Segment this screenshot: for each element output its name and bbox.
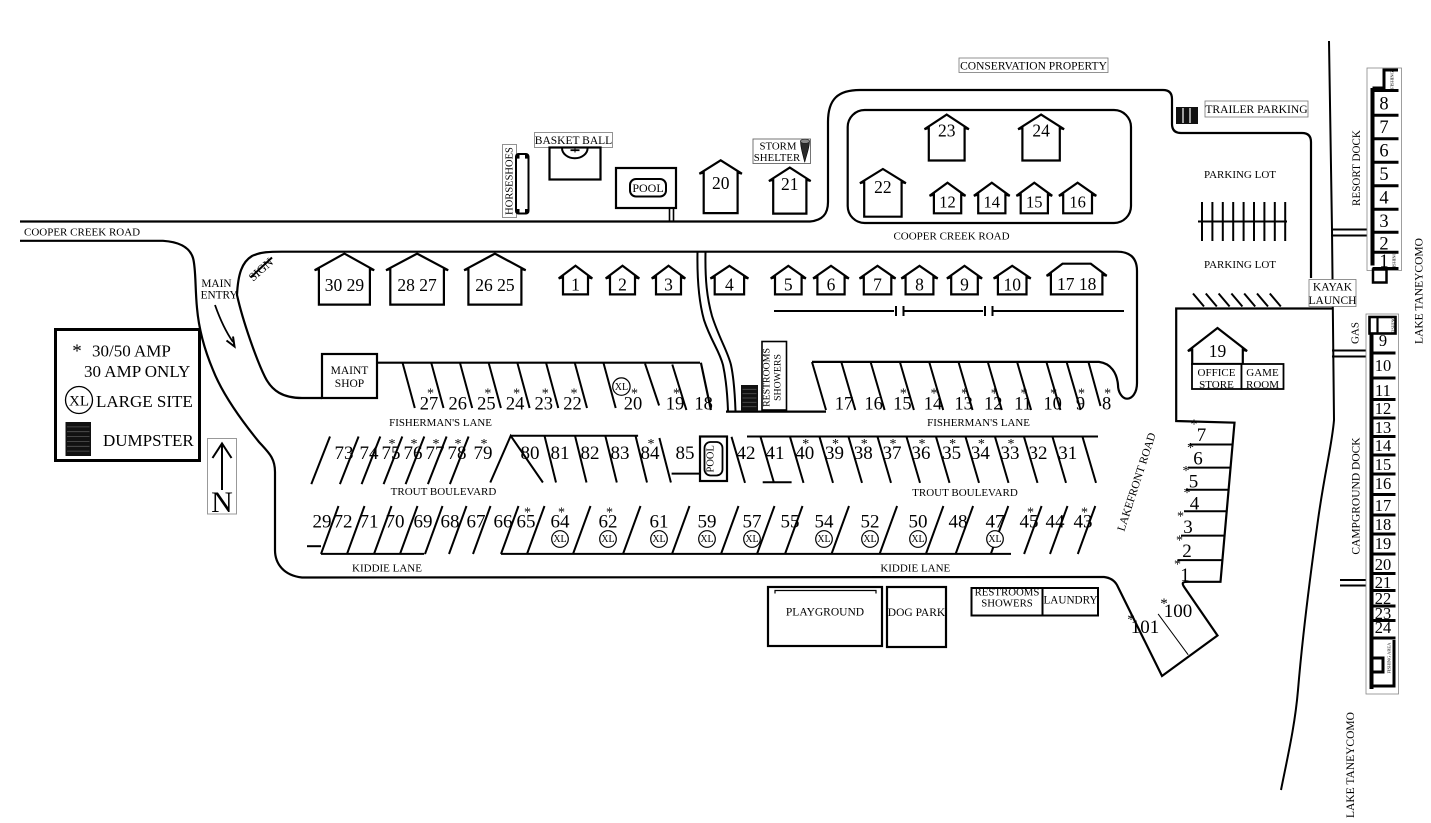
svg-text:PARKING LOT: PARKING LOT <box>1204 169 1276 181</box>
svg-text:TROUT BOULEVARD: TROUT BOULEVARD <box>391 486 497 498</box>
svg-text:82: 82 <box>581 443 600 464</box>
svg-text:*: * <box>978 437 985 452</box>
svg-text:8: 8 <box>915 275 924 295</box>
svg-text:57: 57 <box>743 512 762 533</box>
svg-text:2: 2 <box>1182 541 1192 562</box>
svg-text:*: * <box>427 387 434 402</box>
svg-text:COOPER CREEK ROAD: COOPER CREEK ROAD <box>24 227 140 239</box>
svg-text:*: * <box>606 506 613 521</box>
svg-text:MAIN: MAIN <box>201 278 231 290</box>
svg-text:42: 42 <box>737 443 756 464</box>
svg-text:FISHERMAN'S LANE: FISHERMAN'S LANE <box>927 417 1030 429</box>
svg-text:1: 1 <box>571 275 580 295</box>
svg-text:7: 7 <box>1379 118 1388 138</box>
svg-text:16: 16 <box>864 395 883 415</box>
svg-text:ROOM: ROOM <box>1246 379 1279 391</box>
svg-text:*: * <box>1021 387 1028 402</box>
svg-text:*: * <box>389 437 396 452</box>
svg-text:50: 50 <box>909 512 928 533</box>
svg-text:OFFICE: OFFICE <box>1198 367 1236 379</box>
svg-text:MAINT: MAINT <box>331 365 369 377</box>
svg-text:74: 74 <box>360 443 380 464</box>
svg-text:17: 17 <box>1375 496 1392 515</box>
svg-text:*: * <box>1104 387 1111 402</box>
svg-text:*: * <box>1174 558 1181 573</box>
svg-text:*: * <box>1008 437 1015 452</box>
svg-text:*: * <box>481 437 488 452</box>
svg-text:*: * <box>542 387 549 402</box>
svg-text:32: 32 <box>1029 443 1048 464</box>
svg-text:4: 4 <box>1190 494 1200 515</box>
svg-text:ENTRY: ENTRY <box>201 290 238 302</box>
svg-text:POOL: POOL <box>632 181 663 195</box>
svg-text:FISHING: FISHING <box>1390 70 1395 89</box>
svg-text:XL: XL <box>988 534 1001 545</box>
svg-text:59: 59 <box>698 512 717 533</box>
svg-text:LAUNCH: LAUNCH <box>1309 295 1357 307</box>
svg-text:3: 3 <box>1183 517 1193 538</box>
svg-text:XL: XL <box>863 534 876 545</box>
svg-text:*: * <box>1127 612 1135 628</box>
svg-text:6: 6 <box>1379 142 1388 162</box>
svg-text:*: * <box>484 387 491 402</box>
svg-text:5: 5 <box>1379 165 1388 185</box>
svg-text:67: 67 <box>467 512 486 533</box>
svg-text:TROUT BOULEVARD: TROUT BOULEVARD <box>912 487 1018 499</box>
svg-text:CAMPGROUND DOCK: CAMPGROUND DOCK <box>1351 437 1363 555</box>
svg-text:20: 20 <box>1375 555 1392 574</box>
svg-text:XL: XL <box>601 534 614 545</box>
svg-text:FISHING AREA: FISHING AREA <box>1387 642 1392 674</box>
svg-text:GAS: GAS <box>1350 322 1362 344</box>
svg-text:COOPER CREEK ROAD: COOPER CREEK ROAD <box>893 231 1009 243</box>
svg-text:LARGE SITE: LARGE SITE <box>96 392 193 411</box>
svg-text:*: * <box>890 437 897 452</box>
svg-text:TRAILER PARKING: TRAILER PARKING <box>1205 103 1308 116</box>
svg-text:STORM: STORM <box>759 141 796 153</box>
svg-text:85: 85 <box>676 443 695 464</box>
svg-text:*: * <box>861 437 868 452</box>
svg-text:*: * <box>411 437 418 452</box>
svg-text:44: 44 <box>1046 512 1066 533</box>
svg-text:*: * <box>524 506 531 521</box>
svg-text:RESTROOMS: RESTROOMS <box>762 348 773 407</box>
svg-text:*: * <box>1081 506 1088 521</box>
svg-text:LAKE TANEYCOMO: LAKE TANEYCOMO <box>1345 712 1357 818</box>
svg-text:6: 6 <box>1193 449 1203 470</box>
svg-text:*: * <box>513 387 520 402</box>
svg-text:PARKING LOT: PARKING LOT <box>1204 259 1276 271</box>
svg-text:41: 41 <box>766 443 785 464</box>
svg-text:*: * <box>72 341 82 362</box>
svg-text:*: * <box>1078 387 1085 402</box>
svg-text:7: 7 <box>1197 425 1207 446</box>
svg-text:22: 22 <box>874 177 892 197</box>
svg-text:XL: XL <box>69 394 89 410</box>
svg-text:XL: XL <box>700 534 713 545</box>
svg-text:26 25: 26 25 <box>475 275 515 295</box>
svg-text:29: 29 <box>313 512 332 533</box>
svg-text:70: 70 <box>386 512 405 533</box>
svg-text:8: 8 <box>1379 95 1388 115</box>
svg-text:14: 14 <box>984 193 1001 212</box>
svg-text:*: * <box>931 387 938 402</box>
svg-text:KAYAK: KAYAK <box>1313 281 1353 293</box>
svg-text:61: 61 <box>650 512 669 533</box>
svg-text:24: 24 <box>1032 121 1050 141</box>
svg-text:*: * <box>1191 418 1198 433</box>
svg-text:24: 24 <box>1375 618 1392 637</box>
svg-text:4: 4 <box>1379 189 1388 209</box>
svg-text:*: * <box>631 387 638 402</box>
svg-text:KIDDIE LANE: KIDDIE LANE <box>880 563 950 575</box>
svg-text:XL: XL <box>652 534 665 545</box>
svg-text:XL: XL <box>817 534 830 545</box>
svg-text:47: 47 <box>986 512 1005 533</box>
svg-text:71: 71 <box>360 512 379 533</box>
svg-text:20: 20 <box>712 173 730 193</box>
svg-text:*: * <box>1160 596 1168 612</box>
svg-text:68: 68 <box>441 512 460 533</box>
svg-text:55: 55 <box>781 512 800 533</box>
svg-text:*: * <box>433 437 440 452</box>
svg-text:*: * <box>1176 534 1183 549</box>
svg-text:9: 9 <box>960 275 969 295</box>
svg-text:XL: XL <box>553 534 566 545</box>
svg-text:5: 5 <box>784 275 793 295</box>
svg-text:FISHING: FISHING <box>1391 317 1396 334</box>
svg-text:HORSESHOES: HORSESHOES <box>505 147 516 215</box>
svg-text:18: 18 <box>694 395 713 415</box>
svg-text:30 29: 30 29 <box>325 275 365 295</box>
svg-text:19: 19 <box>1209 341 1227 361</box>
svg-text:17 18: 17 18 <box>1057 274 1097 294</box>
svg-text:83: 83 <box>611 443 630 464</box>
svg-text:SHOP: SHOP <box>335 378 364 390</box>
svg-text:16: 16 <box>1375 474 1392 493</box>
svg-text:*: * <box>991 387 998 402</box>
svg-text:*: * <box>802 437 809 452</box>
svg-text:100: 100 <box>1164 601 1193 622</box>
svg-text:1: 1 <box>1180 565 1190 586</box>
svg-text:FISHERMAN'S LANE: FISHERMAN'S LANE <box>389 417 492 429</box>
svg-text:6: 6 <box>827 275 836 295</box>
svg-text:3: 3 <box>664 275 673 295</box>
svg-text:*: * <box>1177 510 1184 525</box>
svg-text:17: 17 <box>835 395 854 415</box>
svg-text:26: 26 <box>448 395 467 415</box>
svg-text:3: 3 <box>1379 212 1388 232</box>
svg-text:48: 48 <box>949 512 968 533</box>
svg-text:16: 16 <box>1069 193 1086 212</box>
svg-text:*: * <box>1187 441 1194 456</box>
svg-text:*: * <box>558 506 565 521</box>
svg-text:12: 12 <box>1375 399 1392 418</box>
svg-text:STORE: STORE <box>1199 379 1234 391</box>
svg-text:23: 23 <box>938 121 956 141</box>
svg-text:7: 7 <box>873 275 882 295</box>
svg-text:XL: XL <box>615 382 628 393</box>
svg-text:RESORT DOCK: RESORT DOCK <box>1351 130 1363 206</box>
svg-text:SHOWERS: SHOWERS <box>773 354 784 401</box>
svg-text:CONSERVATION PROPERTY: CONSERVATION PROPERTY <box>960 60 1107 72</box>
svg-text:13: 13 <box>1375 418 1392 437</box>
svg-text:PLAYGROUND: PLAYGROUND <box>786 607 864 619</box>
svg-text:*: * <box>832 437 839 452</box>
svg-text:54: 54 <box>815 512 835 533</box>
svg-text:XL: XL <box>911 534 924 545</box>
svg-text:69: 69 <box>414 512 433 533</box>
svg-text:10: 10 <box>1375 356 1392 375</box>
svg-text:FISHING: FISHING <box>1392 251 1397 270</box>
svg-text:30 AMP ONLY: 30 AMP ONLY <box>84 362 190 381</box>
svg-text:BASKET BALL: BASKET BALL <box>535 135 612 147</box>
svg-text:POOL: POOL <box>706 445 717 472</box>
svg-text:18: 18 <box>1375 515 1392 534</box>
svg-text:30/50 AMP: 30/50 AMP <box>92 342 171 361</box>
svg-text:SHOWERS: SHOWERS <box>981 598 1033 610</box>
svg-text:73: 73 <box>335 443 354 464</box>
svg-text:*: * <box>673 387 680 402</box>
svg-text:10: 10 <box>1003 275 1021 295</box>
svg-text:SHELTER: SHELTER <box>754 152 801 164</box>
svg-text:DUMPSTER: DUMPSTER <box>103 431 194 450</box>
svg-text:*: * <box>919 437 926 452</box>
svg-text:*: * <box>900 387 907 402</box>
svg-text:15: 15 <box>1375 455 1392 474</box>
svg-text:*: * <box>961 387 968 402</box>
svg-text:101: 101 <box>1131 617 1160 638</box>
svg-text:15: 15 <box>1026 193 1043 212</box>
svg-text:*: * <box>1183 464 1190 479</box>
svg-text:12: 12 <box>939 193 956 212</box>
svg-text:28 27: 28 27 <box>397 275 437 295</box>
svg-text:LAUNDRY: LAUNDRY <box>1043 595 1097 607</box>
svg-text:2: 2 <box>618 275 627 295</box>
svg-text:80: 80 <box>521 443 540 464</box>
svg-text:*: * <box>949 437 956 452</box>
svg-text:72: 72 <box>334 512 353 533</box>
svg-text:*: * <box>571 387 578 402</box>
svg-text:LAKE TANEYCOMO: LAKE TANEYCOMO <box>1414 238 1426 344</box>
svg-text:*: * <box>455 437 462 452</box>
svg-text:14: 14 <box>1375 436 1392 455</box>
svg-text:19: 19 <box>1375 534 1392 553</box>
svg-text:*: * <box>648 437 655 452</box>
svg-text:52: 52 <box>861 512 880 533</box>
svg-text:KIDDIE LANE: KIDDIE LANE <box>352 563 422 575</box>
svg-text:81: 81 <box>551 443 570 464</box>
svg-text:*: * <box>1027 506 1034 521</box>
svg-text:*: * <box>1184 486 1191 501</box>
svg-text:21: 21 <box>781 174 799 194</box>
svg-text:XL: XL <box>745 534 758 545</box>
svg-text:*: * <box>1050 387 1057 402</box>
svg-text:31: 31 <box>1058 443 1077 464</box>
svg-text:N: N <box>211 486 233 519</box>
svg-text:4: 4 <box>725 275 734 295</box>
svg-text:11: 11 <box>1375 381 1391 400</box>
svg-text:GAME: GAME <box>1246 367 1279 379</box>
svg-text:66: 66 <box>494 512 513 533</box>
svg-text:DOG PARK: DOG PARK <box>888 607 946 619</box>
